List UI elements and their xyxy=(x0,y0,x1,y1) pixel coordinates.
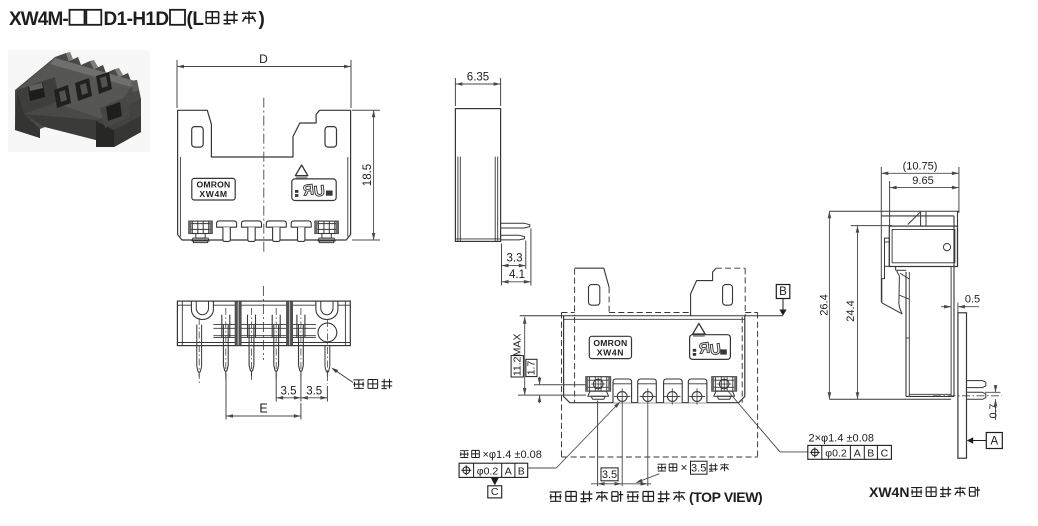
svg-text:3.5: 3.5 xyxy=(281,386,297,398)
svg-text:3.5: 3.5 xyxy=(602,469,617,481)
svg-text:XW4M-: XW4M- xyxy=(9,9,68,30)
svg-text:×φ1.4 ±0.08: ×φ1.4 ±0.08 xyxy=(483,449,542,461)
svg-text:6.35: 6.35 xyxy=(467,72,489,84)
svg-text:3.3: 3.3 xyxy=(507,253,523,265)
svg-text:3.5: 3.5 xyxy=(691,462,706,474)
svg-text:A: A xyxy=(505,465,512,477)
svg-text:2×φ1.4 ±0.08: 2×φ1.4 ±0.08 xyxy=(809,433,874,445)
svg-text:φ0.2: φ0.2 xyxy=(477,465,499,477)
svg-text:A: A xyxy=(990,436,998,448)
svg-text:MAX: MAX xyxy=(512,334,524,357)
svg-text:×: × xyxy=(680,461,687,475)
svg-text:11.2: 11.2 xyxy=(512,356,524,376)
svg-text:C: C xyxy=(881,447,889,459)
svg-text:B: B xyxy=(779,286,787,298)
svg-text:C: C xyxy=(491,486,499,498)
svg-text:): ) xyxy=(259,9,265,30)
svg-text:XW4N: XW4N xyxy=(597,347,624,357)
svg-text:U: U xyxy=(709,341,722,359)
svg-text:XW4M: XW4M xyxy=(199,189,227,199)
svg-text:26.4: 26.4 xyxy=(819,294,831,315)
svg-text:D1-H1D: D1-H1D xyxy=(104,9,169,30)
svg-text:0.5: 0.5 xyxy=(965,294,980,306)
svg-text:E: E xyxy=(259,402,267,416)
svg-text:4.1: 4.1 xyxy=(509,269,525,281)
svg-text:(L: (L xyxy=(187,9,205,30)
svg-text:(TOP VIEW): (TOP VIEW) xyxy=(689,489,762,505)
svg-text:9.65: 9.65 xyxy=(912,175,933,187)
svg-text:φ0.2: φ0.2 xyxy=(825,447,847,459)
svg-text:24.4: 24.4 xyxy=(845,300,857,321)
svg-text:3.5: 3.5 xyxy=(306,386,322,398)
svg-text:0.7: 0.7 xyxy=(988,404,1000,419)
svg-text:18.5: 18.5 xyxy=(362,164,374,186)
svg-text:(10.75): (10.75) xyxy=(903,161,938,173)
svg-text:XW4N: XW4N xyxy=(869,484,909,500)
svg-text:1.7: 1.7 xyxy=(526,361,538,376)
svg-text:D: D xyxy=(259,52,268,66)
svg-text:B: B xyxy=(867,447,874,459)
svg-text:B: B xyxy=(518,465,525,477)
svg-text:A: A xyxy=(854,447,861,459)
svg-text:U: U xyxy=(313,182,326,200)
